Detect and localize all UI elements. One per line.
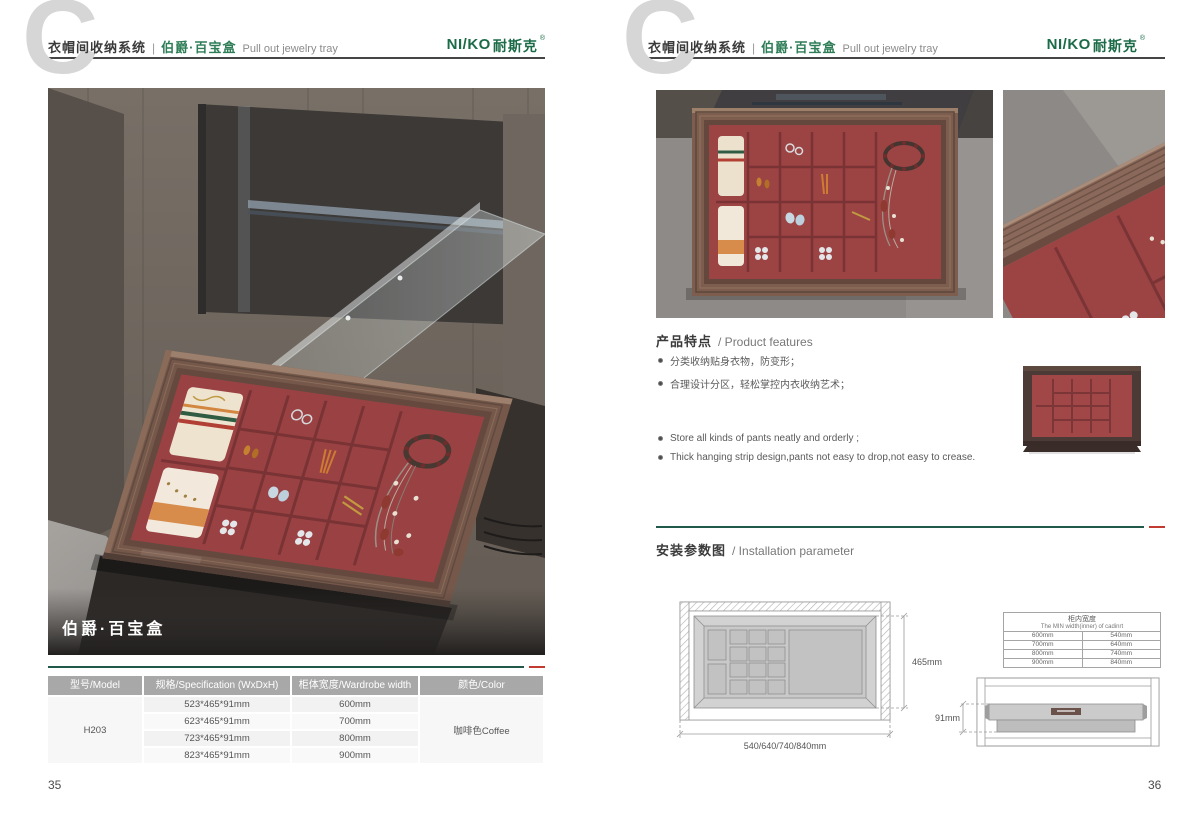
features-title: 产品特点 / Product features [656,331,813,350]
feature-item: Store all kinds of pants neatly and orde… [658,433,975,444]
product-render [1003,350,1163,475]
tray-corner-photo [1003,90,1165,318]
spec-cell: 723*465*91mm [144,731,290,746]
col-header-model: 型号/Model [48,676,142,695]
table-row: 600mm540mm [1004,632,1161,641]
section-divider [656,526,1165,528]
feature-text: Store all kinds of pants neatly and orde… [670,433,859,444]
page-number: 36 [1148,778,1161,792]
feature-item: 合理设计分区，轻松掌控内衣收纳艺术； [658,376,850,391]
product-name-en: Pull out jewelry tray [842,43,937,55]
features-title-cn: 产品特点 [656,331,712,350]
page-number: 35 [48,778,61,792]
cabinet-width-table: 柜内宽度 The MIN width(inner) of cadinrt 600… [1003,612,1161,668]
brand-logo: NI/KO 耐斯克 ® [447,36,545,56]
sideview-illustration: 91mm [933,672,1165,754]
photo-caption: 伯爵·百宝盒 [62,615,165,639]
bullet-icon [658,436,663,441]
installation-title-cn: 安装参数图 [656,540,726,559]
page-header: 衣帽间收纳系统 | 伯爵·百宝盒 Pull out jewelry tray [648,37,938,56]
tray-topdown-photo [656,90,993,318]
header-separator: | [152,41,155,55]
spec-cell: 823*465*91mm [144,748,290,763]
color-cell: 咖啡色Coffee [420,697,543,763]
product-render-illustration [1003,350,1161,472]
width-cell: 900mm [292,748,418,763]
height-dimension-label: 91mm [935,713,960,723]
left-page: C 衣帽间收纳系统 | 伯爵·百宝盒 Pull out jewelry tray… [0,0,600,820]
col-header-spec: 规格/Specification (WxDxH) [144,676,290,695]
topview-diagram: 465mm 540/640/740/840mm [660,596,960,769]
spec-cell: 623*465*91mm [144,714,290,729]
features-title-en: / Product features [718,335,813,349]
system-title: 衣帽间收纳系统 [648,37,746,56]
brand-logo-latin: NI/KO [447,36,491,53]
wardrobe-photo: 伯爵·百宝盒 [48,88,545,655]
sideview-diagram: 91mm [933,672,1165,759]
table-row: 800mm740mm [1004,650,1161,659]
system-title: 衣帽间收纳系统 [48,37,146,56]
wardrobe-photo-illustration [48,88,545,655]
installation-title-en: / Installation parameter [732,544,854,558]
width-table-title-cn: 柜内宽度 [1004,614,1160,624]
table-row: 900mm840mm [1004,659,1161,668]
right-page: C 衣帽间收纳系统 | 伯爵·百宝盒 Pull out jewelry tray… [600,0,1200,820]
table-row: 700mm640mm [1004,641,1161,650]
feature-item: Thick hanging strip design,pants not eas… [658,452,975,463]
width-cell: 800mm [292,731,418,746]
feature-text: 合理设计分区，轻松掌控内衣收纳艺术； [670,376,850,391]
features-list-cn: 分类收纳贴身衣物，防变形； 合理设计分区，轻松掌控内衣收纳艺术； [658,353,850,399]
section-divider [48,666,545,668]
bullet-icon [658,358,663,363]
brand-logo-chinese: 耐斯克 [493,36,538,56]
model-cell: H203 [48,697,142,763]
width-cell: 700mm [292,714,418,729]
tray-corner-illustration [1003,90,1165,318]
header-separator: | [752,41,755,55]
header-rule [48,57,545,59]
bullet-icon [658,381,663,386]
tray-topdown-illustration [656,90,993,318]
brand-logo: NI/KO 耐斯克 ® [1047,36,1145,56]
left-wall [48,88,124,560]
registered-mark: ® [540,35,545,42]
page-header: 衣帽间收纳系统 | 伯爵·百宝盒 Pull out jewelry tray [48,37,338,56]
brand-logo-latin: NI/KO [1047,36,1091,53]
feature-text: 分类收纳贴身衣物，防变形； [670,353,800,368]
width-table-header: 柜内宽度 The MIN width(inner) of cadinrt [1004,613,1161,632]
catalog-spread: C 衣帽间收纳系统 | 伯爵·百宝盒 Pull out jewelry tray… [0,0,1200,820]
depth-dimension-label: 465mm [912,657,942,667]
spec-table: 型号/Model 规格/Specification (WxDxH) 柜体宽度/W… [48,676,545,763]
header-rule [648,57,1165,59]
registered-mark: ® [1140,35,1145,42]
spec-cell: 523*465*91mm [144,697,290,712]
feature-item: 分类收纳贴身衣物，防变形； [658,353,850,368]
width-table-title-en: The MIN width(inner) of cadinrt [1004,624,1160,630]
col-header-width: 柜体宽度/Wardrobe width [292,676,418,695]
bullet-icon [658,455,663,460]
brand-logo-chinese: 耐斯克 [1093,36,1138,56]
product-name-en: Pull out jewelry tray [242,43,337,55]
width-cell: 600mm [292,697,418,712]
topview-illustration: 465mm 540/640/740/840mm [660,596,960,764]
product-name-cn: 伯爵·百宝盒 [761,37,836,56]
feature-text: Thick hanging strip design,pants not eas… [670,452,975,463]
col-header-color: 颜色/Color [420,676,543,695]
installation-title: 安装参数图 / Installation parameter [656,540,854,559]
width-dimension-label: 540/640/740/840mm [744,741,827,751]
product-name-cn: 伯爵·百宝盒 [161,37,236,56]
features-list-en: Store all kinds of pants neatly and orde… [658,433,975,471]
